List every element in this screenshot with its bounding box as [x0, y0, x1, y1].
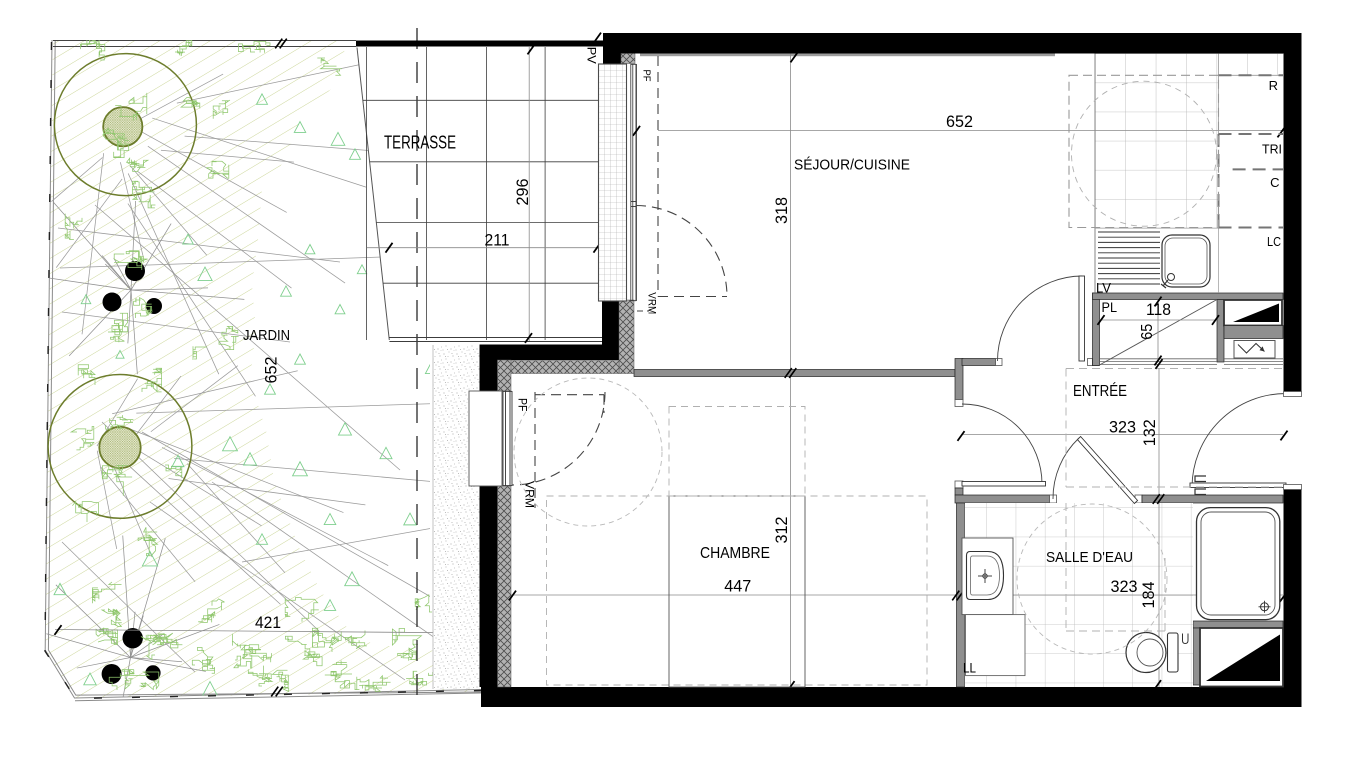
svg-text:PF: PF — [641, 70, 653, 82]
svg-text:TERRASSE: TERRASSE — [384, 133, 456, 153]
svg-text:323: 323 — [1111, 577, 1138, 596]
svg-text:PF: PF — [516, 398, 528, 412]
svg-text:R: R — [1269, 78, 1278, 93]
svg-text:SALLE D'EAU: SALLE D'EAU — [1046, 549, 1133, 566]
svg-text:652: 652 — [946, 112, 973, 131]
svg-text:CHAMBRE: CHAMBRE — [700, 545, 770, 562]
svg-text:C: C — [1270, 175, 1279, 190]
svg-text:LC: LC — [1267, 234, 1281, 249]
svg-text:296: 296 — [513, 179, 532, 206]
svg-text:PV: PV — [585, 47, 599, 64]
svg-text:421: 421 — [255, 613, 281, 632]
svg-text:65: 65 — [1139, 324, 1156, 340]
svg-text:ENTRÉE: ENTRÉE — [1073, 383, 1127, 400]
svg-text:652: 652 — [262, 357, 281, 384]
svg-text:PL: PL — [1102, 299, 1118, 315]
svg-text:118: 118 — [1146, 301, 1171, 319]
svg-text:447: 447 — [724, 577, 751, 596]
svg-text:132: 132 — [1140, 419, 1159, 446]
svg-text:211: 211 — [485, 231, 510, 250]
svg-text:184: 184 — [1139, 582, 1158, 609]
svg-text:312: 312 — [772, 517, 791, 544]
svg-text:SÉJOUR/CUISINE: SÉJOUR/CUISINE — [794, 157, 910, 174]
svg-text:JARDIN: JARDIN — [243, 327, 290, 344]
svg-text:318: 318 — [772, 197, 791, 224]
svg-text:VRM: VRM — [646, 292, 658, 314]
svg-text:VRM: VRM — [523, 481, 535, 508]
svg-text:323: 323 — [1109, 417, 1136, 436]
svg-text:LL: LL — [963, 659, 976, 675]
svg-text:TRI: TRI — [1262, 142, 1282, 157]
svg-text:LV: LV — [1096, 280, 1112, 296]
